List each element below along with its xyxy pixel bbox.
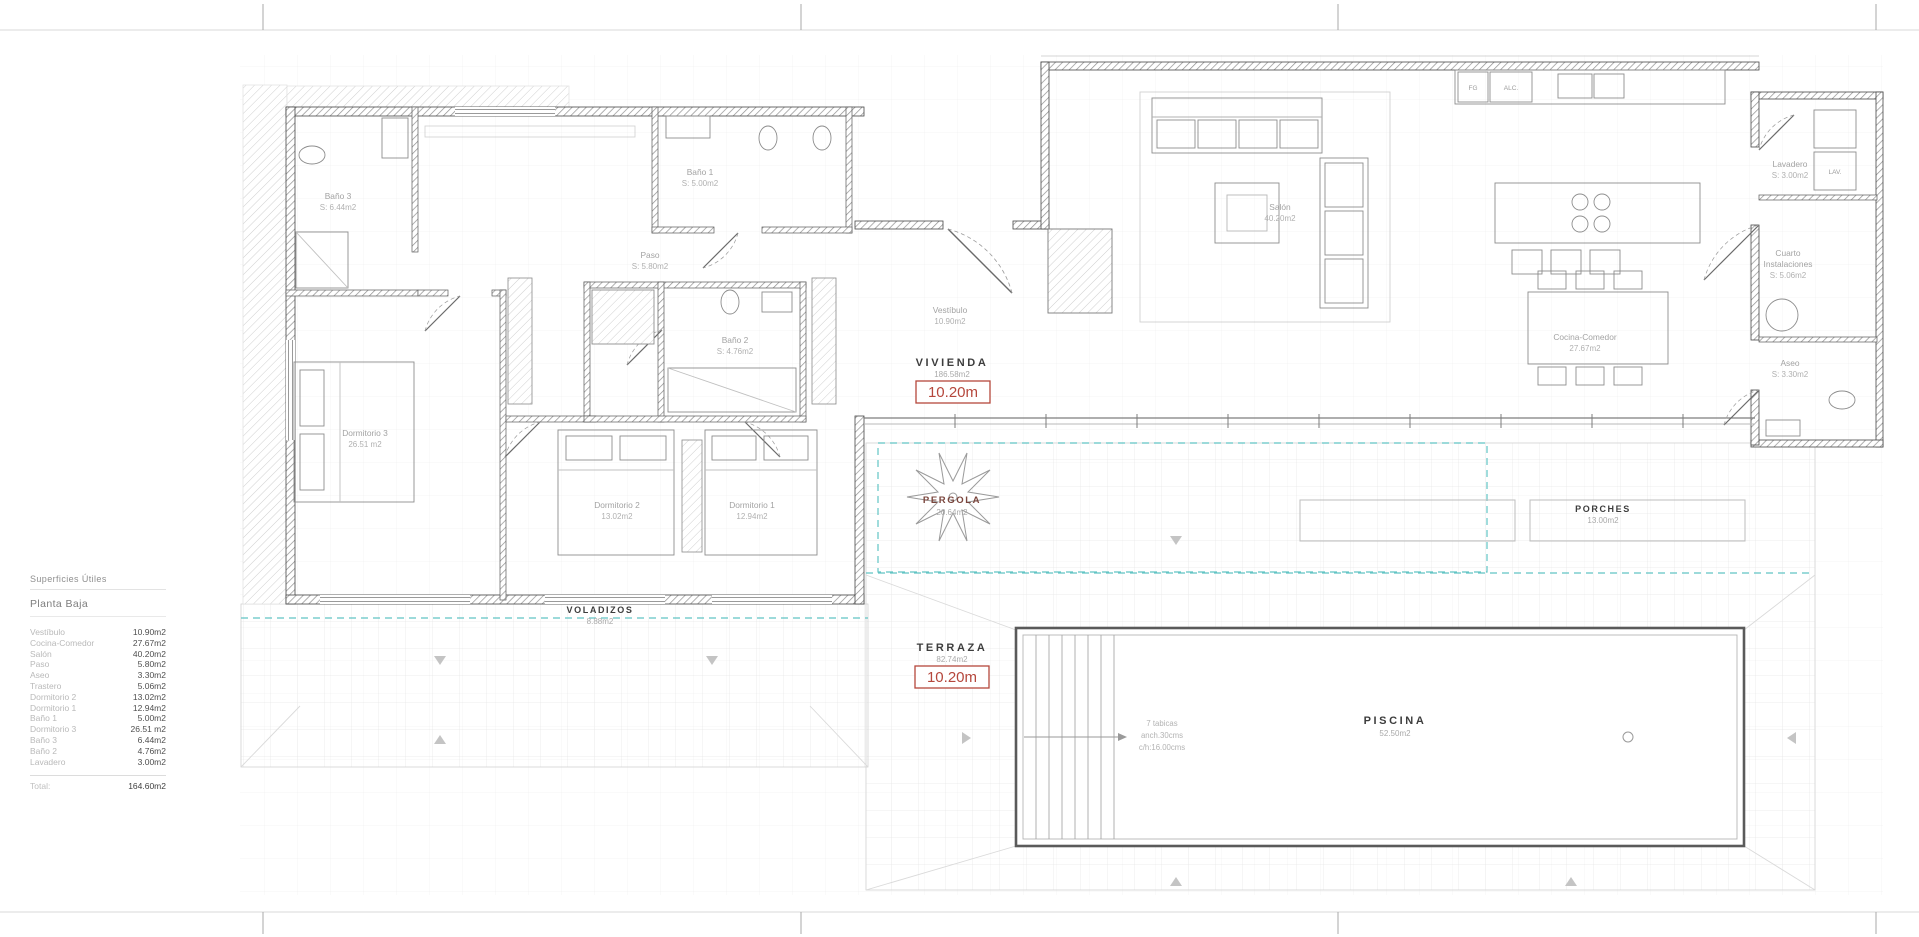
legend-rows: Vestíbulo10.90m2 Cocina-Comedor27.67m2 S… — [30, 627, 166, 767]
surface-schedule: Superficies Útiles Planta Baja Vestíbulo… — [30, 574, 166, 791]
legend-row: Baño 15.00m2 — [30, 713, 166, 724]
drawing-sheet: VIVIENDA 186.58m2 10.20m TERRAZA 82.74m2… — [0, 0, 1919, 937]
room-paso-name: Paso — [640, 250, 659, 260]
room-bano3-name: Baño 3 — [325, 191, 352, 201]
room-dorm3-area: 26.51 m2 — [348, 440, 382, 449]
zone-piscina-title: PISCINA — [1364, 715, 1427, 727]
trastero-closet — [1048, 229, 1112, 313]
room-cuarto-line1: Cuarto — [1775, 248, 1800, 258]
room-cuarto-line2: Instalaciones — [1764, 259, 1813, 269]
zone-voladizos-title: VOLADIZOS — [567, 605, 634, 615]
zone-vivienda-area: 186.58m2 — [934, 370, 970, 379]
room-bano3-area: S: 6.44m2 — [320, 203, 357, 212]
vivienda-dim: 10.20m — [928, 384, 978, 401]
legend-row: Vestíbulo10.90m2 — [30, 627, 166, 638]
room-dorm1-name: Dormitorio 1 — [729, 500, 775, 510]
room-bano2-area: S: 4.76m2 — [717, 347, 754, 356]
legend-row: Paso5.80m2 — [30, 659, 166, 670]
room-salon-name: Salón — [1269, 202, 1291, 212]
pool-steps-note-3: c/h:16.00cms — [1139, 743, 1185, 752]
room-bano1-name: Baño 1 — [687, 167, 714, 177]
room-vestibulo-area: 10.90m2 — [934, 317, 966, 326]
room-dorm3-name: Dormitorio 3 — [342, 428, 388, 438]
tag-lav: LAV. — [1828, 169, 1841, 176]
room-vestibulo-name: Vestíbulo — [933, 305, 968, 315]
zone-pergola-area: 20.64m2 — [936, 508, 968, 517]
room-dorm1-area: 12.94m2 — [736, 512, 768, 521]
zone-piscina-area: 52.50m2 — [1379, 729, 1411, 738]
pool-steps-note-2: anch.30cms — [1141, 731, 1183, 740]
room-paso-area: S: 5.80m2 — [632, 262, 669, 271]
legend-title: Superficies Útiles — [30, 574, 166, 590]
pool-steps-note-1: 7 tabicas — [1146, 719, 1177, 728]
room-bano1-area: S: 5.00m2 — [682, 179, 719, 188]
room-lavadero-name: Lavadero — [1773, 159, 1808, 169]
room-bano2-name: Baño 2 — [722, 335, 749, 345]
floor-plan: VIVIENDA 186.58m2 10.20m TERRAZA 82.74m2… — [0, 0, 1919, 937]
zone-vivienda-title: VIVIENDA — [916, 357, 989, 369]
terraza-dim: 10.20m — [927, 669, 977, 686]
room-lavadero-area: S: 3.00m2 — [1772, 171, 1809, 180]
room-salon-area: 40.20m2 — [1264, 214, 1296, 223]
zone-porches-title: PORCHES — [1575, 504, 1631, 514]
legend-row: Trastero5.06m2 — [30, 681, 166, 692]
room-cocina-area: 27.67m2 — [1569, 344, 1601, 353]
zone-porches-area: 13.00m2 — [1587, 516, 1619, 525]
legend-row: Baño 24.76m2 — [30, 746, 166, 757]
legend-subtitle: Planta Baja — [30, 598, 166, 617]
tag-alc: ALC. — [1504, 85, 1519, 92]
room-cuarto-area: S: 5.06m2 — [1770, 271, 1807, 280]
legend-row: Baño 36.44m2 — [30, 735, 166, 746]
legend-row: Cocina-Comedor27.67m2 — [30, 638, 166, 649]
legend-row: Aseo3.30m2 — [30, 670, 166, 681]
room-dorm2-name: Dormitorio 2 — [594, 500, 640, 510]
zone-terraza-title: TERRAZA — [917, 642, 988, 654]
room-dorm2-area: 13.02m2 — [601, 512, 633, 521]
legend-total: Total: 164.60m2 — [30, 775, 166, 791]
legend-row: Dormitorio 213.02m2 — [30, 692, 166, 703]
legend-row: Dormitorio 326.51 m2 — [30, 724, 166, 735]
legend-row: Lavadero3.00m2 — [30, 757, 166, 768]
room-aseo-name: Aseo — [1780, 358, 1799, 368]
zone-terraza-area: 82.74m2 — [936, 655, 968, 664]
room-cocina-name: Cocina-Comedor — [1553, 332, 1617, 342]
legend-row: Dormitorio 112.94m2 — [30, 703, 166, 714]
zone-voladizos-area: 8.88m2 — [587, 617, 614, 626]
tag-fg: FG — [1468, 85, 1477, 92]
legend-row: Salón40.20m2 — [30, 649, 166, 660]
zone-pergola-title: PERGOLA — [923, 495, 981, 506]
room-aseo-area: S: 3.30m2 — [1772, 370, 1809, 379]
